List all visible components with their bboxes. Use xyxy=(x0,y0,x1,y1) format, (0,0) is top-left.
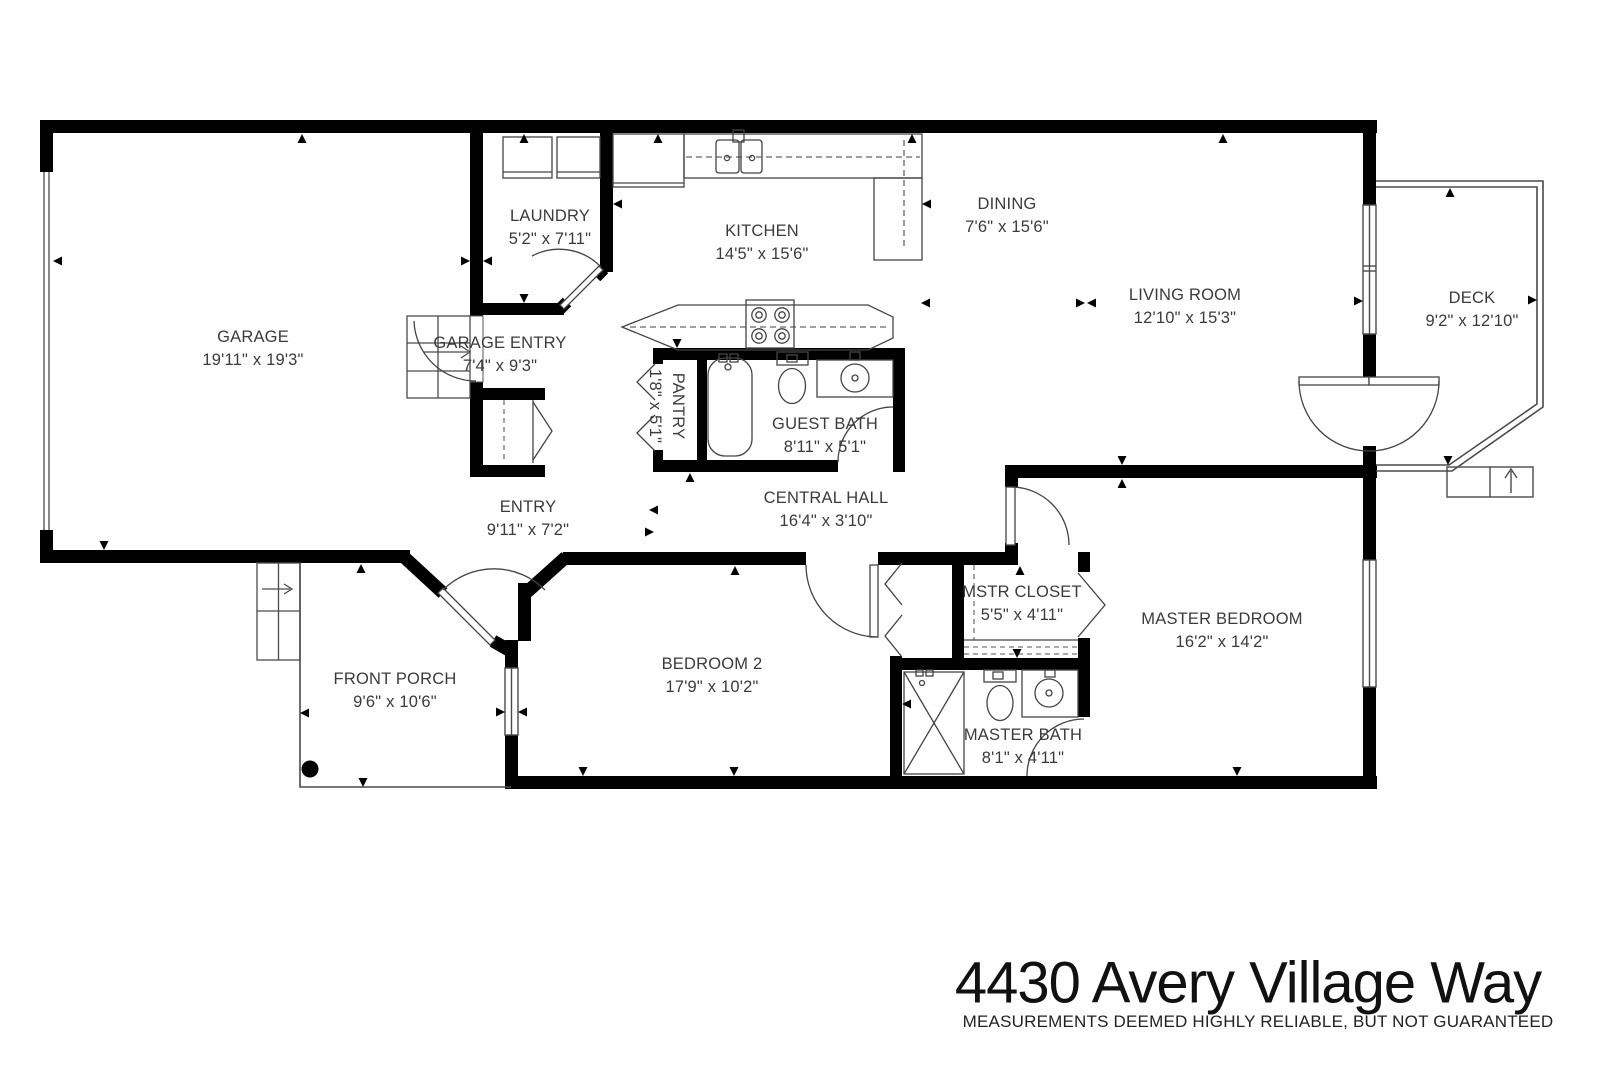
room-dims: 1'8" x 5'1" xyxy=(643,369,666,443)
room-name: MSTR CLOSET xyxy=(962,581,1082,604)
room-name: GUEST BATH xyxy=(772,413,878,436)
room-label-master-bath: MASTER BATH 8'1" x 4'11" xyxy=(964,724,1082,770)
room-dims: 8'11" x 5'1" xyxy=(772,436,878,459)
room-dims: 9'11" x 7'2" xyxy=(487,519,570,542)
room-name: BEDROOM 2 xyxy=(662,653,763,676)
room-dims: 9'6" x 10'6" xyxy=(334,691,457,714)
room-name: LAUNDRY xyxy=(509,205,592,228)
room-labels: GARAGE 19'11" x 19'3" LAUNDRY 5'2" x 7'1… xyxy=(0,0,1620,1080)
room-name: GARAGE xyxy=(202,326,303,349)
room-label-dining: DINING 7'6" x 15'6" xyxy=(965,193,1049,239)
room-dims: 16'2" x 14'2" xyxy=(1141,631,1302,654)
room-name: KITCHEN xyxy=(715,220,808,243)
room-name: DINING xyxy=(965,193,1049,216)
room-label-living: LIVING ROOM 12'10" x 15'3" xyxy=(1129,284,1241,330)
room-dims: 12'10" x 15'3" xyxy=(1129,307,1241,330)
room-label-guest-bath: GUEST BATH 8'11" x 5'1" xyxy=(772,413,878,459)
room-dims: 7'4" x 9'3" xyxy=(433,355,566,378)
room-label-garage-entry: GARAGE ENTRY 7'4" x 9'3" xyxy=(433,332,566,378)
room-dims: 14'5" x 15'6" xyxy=(715,243,808,266)
room-name: GARAGE ENTRY xyxy=(433,332,566,355)
room-label-garage: GARAGE 19'11" x 19'3" xyxy=(202,326,303,372)
room-label-bedroom2: BEDROOM 2 17'9" x 10'2" xyxy=(662,653,763,699)
room-label-front-porch: FRONT PORCH 9'6" x 10'6" xyxy=(334,668,457,714)
room-dims: 5'5" x 4'11" xyxy=(962,604,1082,627)
page-title: 4430 Avery Village Way xyxy=(955,950,1541,1017)
room-label-entry: ENTRY 9'11" x 7'2" xyxy=(487,496,570,542)
floor-plan: GARAGE 19'11" x 19'3" LAUNDRY 5'2" x 7'1… xyxy=(0,0,1620,1080)
room-dims: 8'1" x 4'11" xyxy=(964,747,1082,770)
room-dims: 19'11" x 19'3" xyxy=(202,349,303,372)
room-name: PANTRY xyxy=(666,369,689,443)
room-label-central-hall: CENTRAL HALL 16'4" x 3'10" xyxy=(764,487,889,533)
room-dims: 9'2" x 12'10" xyxy=(1425,310,1518,333)
room-name: MASTER BEDROOM xyxy=(1141,608,1302,631)
room-dims: 7'6" x 15'6" xyxy=(965,216,1049,239)
room-name: DECK xyxy=(1425,287,1518,310)
room-dims: 17'9" x 10'2" xyxy=(662,676,763,699)
room-label-master-bedroom: MASTER BEDROOM 16'2" x 14'2" xyxy=(1141,608,1302,654)
disclaimer-text: MEASUREMENTS DEEMED HIGHLY RELIABLE, BUT… xyxy=(963,1012,1554,1032)
room-label-deck: DECK 9'2" x 12'10" xyxy=(1425,287,1518,333)
room-name: MASTER BATH xyxy=(964,724,1082,747)
room-dims: 5'2" x 7'11" xyxy=(509,228,592,251)
room-name: ENTRY xyxy=(487,496,570,519)
room-label-laundry: LAUNDRY 5'2" x 7'11" xyxy=(509,205,592,251)
room-label-pantry: PANTRY 1'8" x 5'1" xyxy=(643,369,689,443)
room-name: LIVING ROOM xyxy=(1129,284,1241,307)
room-name: FRONT PORCH xyxy=(334,668,457,691)
room-label-kitchen: KITCHEN 14'5" x 15'6" xyxy=(715,220,808,266)
room-label-mstr-closet: MSTR CLOSET 5'5" x 4'11" xyxy=(962,581,1082,627)
room-name: CENTRAL HALL xyxy=(764,487,889,510)
room-dims: 16'4" x 3'10" xyxy=(764,510,889,533)
